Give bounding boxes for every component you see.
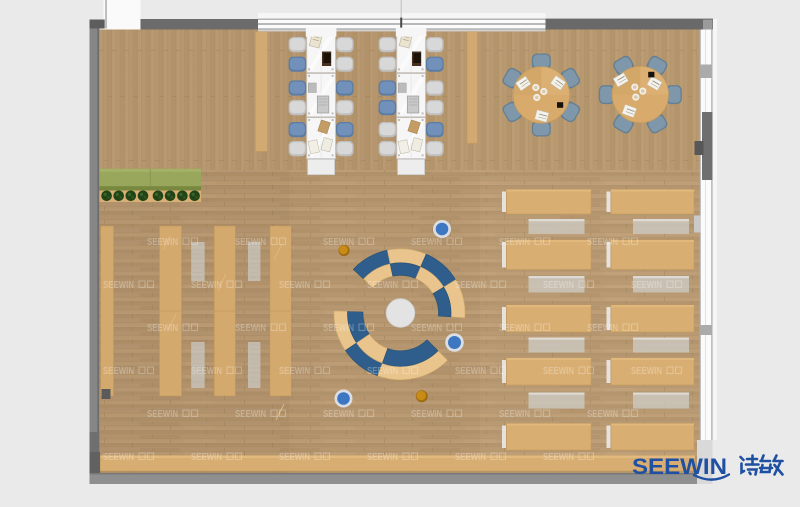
svg-text:SEEWIN: SEEWIN — [323, 409, 354, 420]
svg-text:SEEWIN: SEEWIN — [279, 366, 310, 377]
svg-text:SEEWIN: SEEWIN — [587, 237, 618, 248]
svg-text:SEEWIN: SEEWIN — [543, 366, 574, 377]
svg-text:SEEWIN: SEEWIN — [367, 280, 398, 291]
svg-text:SEEWIN: SEEWIN — [455, 366, 486, 377]
svg-text:SEEWIN: SEEWIN — [103, 366, 134, 377]
svg-text:SEEWIN: SEEWIN — [411, 409, 442, 420]
svg-text:SEEWIN: SEEWIN — [632, 454, 727, 479]
svg-text:SEEWIN: SEEWIN — [191, 280, 222, 291]
svg-text:SEEWIN: SEEWIN — [279, 452, 310, 463]
svg-text:SEEWIN: SEEWIN — [631, 280, 662, 291]
svg-text:SEEWIN: SEEWIN — [543, 452, 574, 463]
svg-text:SEEWIN: SEEWIN — [411, 237, 442, 248]
svg-text:SEEWIN: SEEWIN — [323, 237, 354, 248]
svg-text:SEEWIN: SEEWIN — [147, 237, 178, 248]
svg-text:SEEWIN: SEEWIN — [367, 366, 398, 377]
svg-text:SEEWIN: SEEWIN — [147, 409, 178, 420]
svg-text:SEEWIN: SEEWIN — [191, 366, 222, 377]
svg-text:SEEWIN: SEEWIN — [411, 323, 442, 334]
svg-text:SEEWIN: SEEWIN — [191, 452, 222, 463]
svg-text:SEEWIN: SEEWIN — [543, 280, 574, 291]
svg-text:SEEWIN: SEEWIN — [455, 452, 486, 463]
svg-text:SEEWIN: SEEWIN — [235, 323, 266, 334]
svg-text:SEEWIN: SEEWIN — [499, 237, 530, 248]
svg-text:SEEWIN: SEEWIN — [147, 323, 178, 334]
svg-text:SEEWIN: SEEWIN — [103, 280, 134, 291]
svg-text:SEEWIN: SEEWIN — [587, 409, 618, 420]
svg-text:SEEWIN: SEEWIN — [103, 452, 134, 463]
svg-text:SEEWIN: SEEWIN — [279, 280, 310, 291]
svg-text:SEEWIN: SEEWIN — [235, 237, 266, 248]
svg-text:SEEWIN: SEEWIN — [323, 323, 354, 334]
svg-text:SEEWIN: SEEWIN — [367, 452, 398, 463]
svg-text:SEEWIN: SEEWIN — [631, 366, 662, 377]
svg-text:SEEWIN: SEEWIN — [455, 280, 486, 291]
svg-text:SEEWIN: SEEWIN — [499, 323, 530, 334]
svg-text:SEEWIN: SEEWIN — [587, 323, 618, 334]
svg-text:SEEWIN: SEEWIN — [235, 409, 266, 420]
svg-text:SEEWIN: SEEWIN — [499, 409, 530, 420]
